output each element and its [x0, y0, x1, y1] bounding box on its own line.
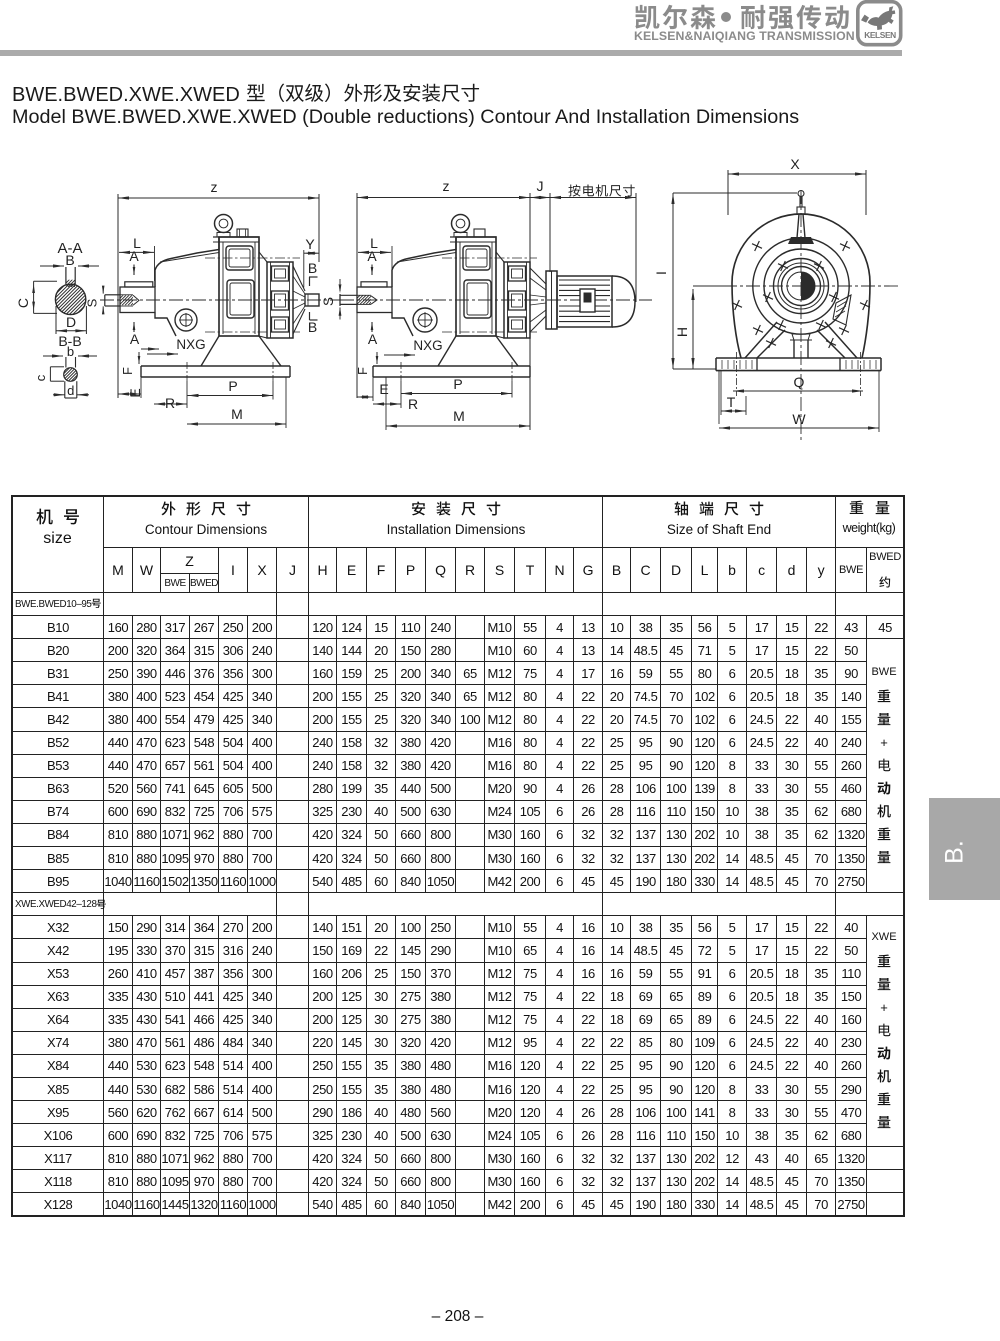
svg-text:R: R	[408, 396, 418, 412]
svg-text:Y: Y	[305, 236, 315, 252]
svg-text:B: B	[65, 252, 74, 268]
svg-text:NXG: NXG	[176, 337, 205, 352]
svg-text:J: J	[537, 178, 544, 194]
svg-text:M: M	[231, 406, 243, 422]
svg-text:b: b	[67, 344, 74, 359]
svg-text:E: E	[379, 381, 388, 397]
svg-text:H: H	[674, 327, 690, 337]
svg-text:KELSEN: KELSEN	[864, 30, 896, 40]
svg-text:W: W	[792, 411, 806, 427]
svg-text:A: A	[129, 248, 139, 264]
svg-text:I: I	[653, 271, 669, 275]
svg-text:M: M	[453, 408, 465, 424]
svg-text:F: F	[120, 367, 135, 375]
svg-text:T: T	[727, 394, 736, 410]
svg-text:B: B	[308, 319, 317, 335]
svg-text:A: A	[367, 248, 377, 264]
svg-text:F: F	[355, 367, 370, 375]
svg-text:d: d	[67, 383, 74, 398]
svg-text:c: c	[33, 374, 48, 381]
svg-text:C: C	[15, 298, 31, 308]
svg-text:S: S	[321, 297, 336, 306]
svg-text:D: D	[66, 314, 76, 330]
svg-text:X: X	[790, 156, 800, 172]
svg-text:Q: Q	[794, 374, 805, 390]
svg-text:z: z	[211, 179, 218, 195]
svg-text:R: R	[165, 395, 175, 411]
svg-text:S: S	[85, 298, 100, 307]
svg-text:A: A	[130, 331, 140, 347]
svg-text:B: B	[308, 260, 317, 276]
svg-text:A: A	[368, 331, 378, 347]
svg-text:z: z	[443, 178, 450, 194]
svg-text:NXG: NXG	[413, 338, 442, 353]
svg-text:P: P	[228, 378, 237, 394]
svg-text:P: P	[453, 376, 462, 392]
